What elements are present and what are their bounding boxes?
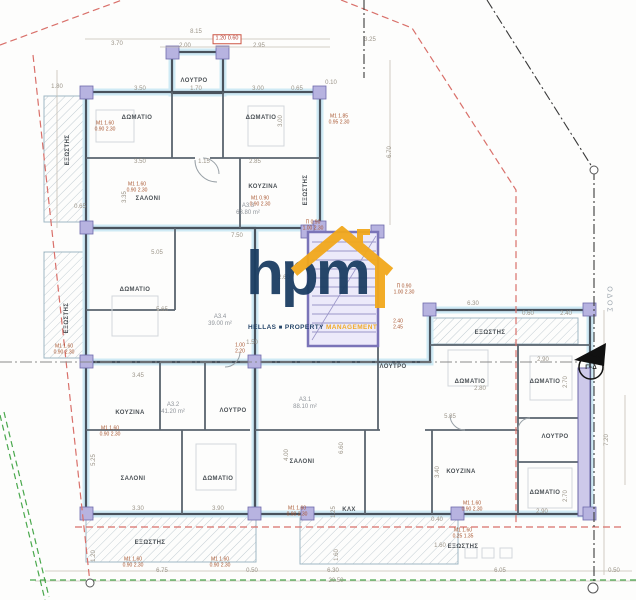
dimension-label: 5.25 bbox=[91, 454, 97, 466]
dimension-label: 5.65 bbox=[156, 307, 168, 313]
room-label: ΣΑΛΟΝΙ bbox=[121, 476, 146, 482]
dimension-label: 2.00 bbox=[179, 43, 191, 49]
floor-plan-canvas: ΟΔΟΣ Γ−Δ ΛΟΥΤΡΟΔΩΜΑΤΙΟΔΩΜΑΤΙΟΕΞΩΣΤΗΣΣΑΛΟ… bbox=[0, 0, 636, 600]
dimension-label: 0.65 bbox=[74, 204, 86, 210]
room-label: ΚΟΥΖΙΝΑ bbox=[115, 410, 144, 416]
hpm-logo: hpm HELLAS ■ PROPERTY MANAGEMENT bbox=[246, 238, 396, 338]
room-label: ΕΞΩΣΤΗΣ bbox=[64, 303, 70, 334]
window-tag: 1.002.20 bbox=[235, 344, 245, 355]
dimension-label: 2.70 bbox=[563, 490, 569, 502]
dimension-label: 3.30 bbox=[132, 506, 144, 512]
dimension-label: 2.95 bbox=[253, 43, 265, 49]
room-label: ΔΩΜΑΤΙΟ bbox=[246, 115, 277, 121]
window-tag: Μ1 1.600.25 1.35 bbox=[453, 529, 474, 540]
window-tag: Μ1 1.600.90 2.30 bbox=[127, 183, 148, 194]
dimension-label: 1.60 bbox=[334, 549, 340, 561]
dimension-label: 3.70 bbox=[111, 41, 123, 47]
dimension-label: 6.30 bbox=[327, 568, 339, 574]
room-label: ΛΟΥΤΡΟ bbox=[180, 78, 207, 84]
window-tag: Μ1 0.900.90 2.30 bbox=[250, 197, 271, 208]
room-label: ΛΟΥΤΡΟ bbox=[379, 364, 406, 370]
dimension-label: 0.50 bbox=[246, 568, 258, 574]
dimension-label: 3.00 bbox=[278, 115, 284, 127]
room-label: ΕΞΩΣΤΗΣ bbox=[303, 175, 309, 206]
dimension-label: 0.10 bbox=[325, 80, 337, 86]
room-label: ΚΟΥΖΙΝΑ bbox=[248, 184, 277, 190]
apartment-label: A3.241.20 m² bbox=[161, 402, 185, 416]
room-label: ΕΞΩΣΤΗΣ bbox=[65, 135, 71, 166]
dimension-label: 1.20 bbox=[91, 550, 97, 562]
dimension-label: 1.80 bbox=[51, 84, 63, 90]
dimension-label: 2.90 bbox=[537, 357, 549, 363]
dimension-label: 1.15 bbox=[198, 159, 210, 165]
logo-word-hellas: HELLAS bbox=[248, 324, 276, 331]
room-label: ΚΟΥΖΙΝΑ bbox=[446, 469, 475, 475]
dimension-label: 1.70 bbox=[190, 86, 202, 92]
window-tag: 1.20 0.60 bbox=[213, 34, 242, 44]
dimension-label: 2.90 bbox=[536, 509, 548, 515]
window-tag: Μ1 1.600.90 2.30 bbox=[210, 558, 231, 569]
room-label: ΔΩΜΑΤΙΟ bbox=[120, 287, 151, 293]
dimension-label: 0.50 bbox=[608, 568, 620, 574]
room-label: ΔΩΜΑΤΙΟ bbox=[530, 379, 561, 385]
room-label: ΕΞΩΣΤΗΣ bbox=[448, 544, 479, 550]
window-tag: Π 0.901.00 2.30 bbox=[394, 285, 415, 296]
dimension-label: 3.45 bbox=[132, 373, 144, 379]
logo-subtitle: HELLAS ■ PROPERTY MANAGEMENT bbox=[248, 324, 377, 331]
room-label: ΣΑΛΟΝΙ bbox=[290, 459, 315, 465]
room-label: ΕΞΩΣΤΗΣ bbox=[135, 540, 166, 546]
room-label: ΣΑΛΟΝΙ bbox=[136, 196, 161, 202]
dimension-label: 3.00 bbox=[252, 86, 264, 92]
dimension-label: 6.75 bbox=[156, 568, 168, 574]
dimension-label: 2.40 bbox=[560, 311, 572, 317]
dimension-label: 7.20 bbox=[604, 434, 610, 446]
window-tag: Μ1 1.600.90 2.30 bbox=[54, 345, 75, 356]
room-label: ΔΩΜΑΤΙΟ bbox=[455, 379, 486, 385]
dimension-label: 2.85 bbox=[249, 159, 261, 165]
window-tag: Μ1 1.600.90 2.30 bbox=[100, 427, 121, 438]
dimension-label: 6.30 bbox=[467, 301, 479, 307]
logo-word-property: PROPERTY bbox=[285, 324, 324, 331]
dimension-label: 5.85 bbox=[444, 414, 456, 420]
dimension-label: 4.00 bbox=[284, 449, 290, 461]
dimension-label: 0.60 bbox=[522, 311, 534, 317]
window-tag: Μ1 1.600.90 2.30 bbox=[123, 558, 144, 569]
dimension-label: 2.80 bbox=[474, 386, 486, 392]
apartment-label: A3.439.00 m² bbox=[208, 314, 232, 328]
dimension-label: 8.15 bbox=[190, 29, 202, 35]
dimension-label: 1.25 bbox=[331, 506, 337, 518]
dimension-label: 6.70 bbox=[387, 146, 393, 158]
dimension-label: 6.60 bbox=[339, 442, 345, 454]
dimension-label: 7.50 bbox=[231, 233, 243, 239]
room-label: ΕΞΩΣΤΗΣ bbox=[475, 330, 506, 336]
apartment-label: A3.188.10 m² bbox=[293, 397, 317, 411]
dimension-label: 1.50 bbox=[246, 340, 258, 346]
room-label: ΔΩΜΑΤΙΟ bbox=[530, 490, 561, 496]
dimension-label: 6.05 bbox=[494, 568, 506, 574]
room-label: ΔΩΜΑΤΙΟ bbox=[203, 476, 234, 482]
window-tag: Μ1 1.600.90 2.30 bbox=[462, 502, 483, 513]
logo-separator-square: ■ bbox=[279, 325, 283, 331]
dimension-label: 20.50 bbox=[328, 578, 343, 584]
dimension-label: 3.25 bbox=[364, 37, 376, 43]
room-label: ΔΩΜΑΤΙΟ bbox=[122, 115, 153, 121]
dimension-label: 3.40 bbox=[435, 466, 441, 478]
dimension-label: 0.65 bbox=[291, 86, 303, 92]
dimension-label: 3.50 bbox=[134, 159, 146, 165]
dimension-label: 2.70 bbox=[563, 376, 569, 388]
house-icon bbox=[290, 226, 394, 312]
dimension-label: 3.90 bbox=[212, 506, 224, 512]
logo-word-management: MANAGEMENT bbox=[326, 324, 377, 331]
room-label: ΛΟΥΤΡΟ bbox=[541, 434, 568, 440]
room-label: ΚΛΧ bbox=[342, 507, 356, 513]
dimension-label: 1.60 bbox=[434, 543, 446, 549]
dimension-label: 3.50 bbox=[134, 86, 146, 92]
dimension-label: 0.40 bbox=[431, 517, 443, 523]
room-label: ΛΟΥΤΡΟ bbox=[219, 408, 246, 414]
window-tag: Μ1 1.850.95 2.30 bbox=[329, 115, 350, 126]
window-tag: Μ1 1.600.90 2.30 bbox=[95, 122, 116, 133]
dimension-label: 5.05 bbox=[151, 250, 163, 256]
window-tag: Μ1 1.600.90 2.30 bbox=[287, 507, 308, 518]
